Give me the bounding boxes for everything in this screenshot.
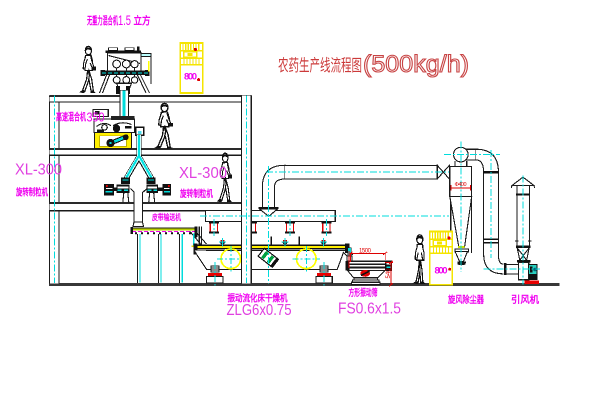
svg-text:无重力混合机: 无重力混合机 xyxy=(87,14,119,27)
svg-text:540: 540 xyxy=(386,268,392,279)
svg-text:Φ400: Φ400 xyxy=(455,182,467,188)
svg-text:(500kg/h): (500kg/h) xyxy=(363,51,469,78)
svg-text:方形振动筛: 方形振动筛 xyxy=(349,287,378,299)
svg-text:1.5: 1.5 xyxy=(118,13,131,28)
svg-text:800: 800 xyxy=(435,266,448,277)
svg-text:引风机: 引风机 xyxy=(511,294,539,306)
svg-text:800: 800 xyxy=(184,72,197,83)
svg-text:XL-300: XL-300 xyxy=(179,165,227,182)
svg-text:1500: 1500 xyxy=(359,248,372,254)
svg-text:皮带输送机: 皮带输送机 xyxy=(151,212,181,222)
svg-text:高速混合机: 高速混合机 xyxy=(56,111,86,124)
svg-text:旋风除尘器: 旋风除尘器 xyxy=(447,294,484,306)
svg-text:旋转制粒机: 旋转制粒机 xyxy=(179,188,213,200)
svg-text:ZLG6x0.75: ZLG6x0.75 xyxy=(227,302,292,319)
svg-text:立方: 立方 xyxy=(134,14,151,27)
svg-text:XL-300: XL-300 xyxy=(15,162,62,179)
svg-text:FS0.6x1.5: FS0.6x1.5 xyxy=(338,301,401,318)
svg-text:旋转制粒机: 旋转制粒机 xyxy=(15,187,48,199)
svg-text:农药生产线流程图: 农药生产线流程图 xyxy=(278,56,362,75)
svg-text:350: 350 xyxy=(87,110,105,125)
